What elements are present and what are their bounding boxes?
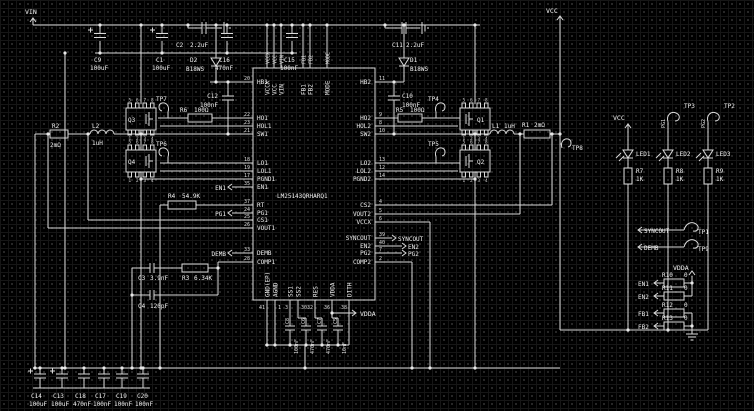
pin-name: RT [257,202,265,209]
ic-top-pins: VCCX VCC VIN FB1 FB2 MODE VCCX VCC VIN F… [265,52,332,95]
res-ref: R11 [662,285,673,292]
vcc-net-label: VCC [613,114,625,122]
res-value: 1K [636,176,644,183]
tp-ref: TP7 [156,96,167,103]
pin-name: FB1 [301,84,308,95]
pad-num: 7 [478,98,481,104]
cap-ref: C19 [116,393,127,400]
pad-num: 1 [129,178,132,184]
pin-name: COMP2 [353,259,371,266]
signal-testpoints[interactable]: TP1 TP9 [684,223,709,253]
pin-num: 2 [379,256,382,262]
pad-num: 2 [136,178,139,184]
fet-ref: Q2 [477,159,485,166]
pin-name: PG2 [360,250,371,257]
cap-value: 100nF [93,401,111,408]
res-ref: R3 [182,275,190,282]
pin-num: 17 [244,173,250,179]
cap-ref: C18 [75,393,86,400]
pg2-net-label: PG2 [701,119,707,128]
pin-num: 35 [244,181,250,187]
pad-num: 6 [136,98,139,104]
res-value: 6.34K [194,275,212,282]
cap-value: 120pF [150,303,168,310]
testpoint-icon [159,148,169,157]
testpoint-icon [684,240,698,248]
cap-value: 470nF [310,339,316,354]
pin-num: 37 [244,199,250,205]
cap-value: 100uF [152,65,170,72]
pin-num: 19 [244,165,250,171]
pin-name: DEMB [257,250,272,257]
vdda-net-label: VDDA [673,264,689,272]
res-value: 1K [716,176,724,183]
resistor-r3 [182,264,208,272]
inductor-l1 [490,130,514,134]
pad-num: 4 [151,178,154,184]
cap-ref: C10 [402,93,413,100]
fet-ref: Q4 [128,159,136,166]
pin-name: VCCX [357,219,372,226]
status-leds[interactable]: LED1 LED2 LED3 R71K R81K R91K TP3 TP2 [616,103,735,184]
pin-num: 11 [379,76,385,82]
pin-name: SS1 [288,286,295,297]
res-value: 2mΩ [50,142,61,149]
tp-ref: TP6 [156,141,167,148]
tp-ref: TP5 [428,141,439,148]
diode-ref: D1 [410,57,418,64]
syncout-net-label: SYNCOUT [644,228,670,235]
cap-ref: C2 [176,42,184,49]
testpoint-icon [561,139,571,148]
ic-lm25143[interactable]: LM25143QRHARQ1 20HB1 22HO1 23HOL1 21SW1 … [244,52,385,311]
ic-name: LM25143QRHARQ1 [277,193,328,200]
pad-num: 8 [485,98,488,104]
cap-ref: C5 [333,318,339,324]
tp-ref: TP8 [572,145,583,152]
res-value: 0 [684,315,688,322]
res-ref: R8 [676,168,684,175]
pin-name: VIN [279,84,286,95]
pin-num: 23 [244,120,250,126]
pad-num: 2 [470,178,473,184]
cap-value: 100uF [90,65,108,72]
pin-name: VOUT1 [257,225,275,232]
cap-ref: C4 [138,303,146,310]
pin-num: 10 [379,128,385,134]
cap-value: 3.9nF [150,275,168,282]
cap-value: 10nF [342,342,348,354]
pin-name: CS1 [257,217,268,224]
cap-value: 100uF [29,401,47,408]
res-value: 2mΩ [534,122,545,129]
pin-name: PGND1 [257,176,275,183]
pad-num: 3 [144,178,147,184]
pin-num: 24 [244,207,250,213]
capacitor-c4 [150,290,154,300]
pad-num: 7 [144,140,147,146]
pin-num: 12 [379,165,385,171]
pin-num: 41 [259,305,265,311]
cap-ref: C9 [94,57,102,64]
pin-name: PGND2 [353,176,371,183]
tp-ref: TP3 [684,103,695,110]
cap-ref: C12 [207,93,218,100]
en2-net-label: EN2 [408,244,419,251]
pin-num: 4 [379,199,382,205]
cap-ref: C11 [392,42,403,49]
pin-name: HO1 [257,115,268,122]
demb-net-label: DEMB [212,251,227,258]
pin-num: 40 [379,240,385,246]
pin-num: 26 [244,222,250,228]
diode-value: B18WS [186,66,204,73]
cap-value: 100nF [280,65,298,72]
demb-net-label: DEMB [644,245,659,252]
pin-name: VDDA [330,282,337,297]
pad-num: 8 [151,98,154,104]
cap-value: 100nF [135,401,153,408]
pin-name: FB2 [308,84,315,95]
res-value: 54.9K [182,193,200,200]
pin-num: 28 [244,256,250,262]
en1-net-label: EN1 [638,281,649,288]
pin-num: 39 [379,232,385,238]
pin-name: RES [313,286,320,297]
inductor-l2 [90,130,114,134]
pad-num: 4 [485,178,488,184]
pad-num: 6 [470,140,473,146]
cap-ref: C15 [284,57,295,64]
cap-value: 100uF [51,401,69,408]
pin-name: EN2 [360,243,371,250]
pin-name: LOL2 [357,168,372,175]
pin-num: 7 [379,247,382,253]
testpoint-icon [159,103,169,112]
pin-num: 38 [341,305,347,311]
cap-value: 2.2uF [406,42,424,49]
cap-ref: C13 [53,393,64,400]
cap-ref: C20 [137,393,148,400]
net-label: VCCX [266,52,272,64]
res-ref: R2 [52,123,60,130]
pin-name: SW1 [257,131,268,138]
pin-num: 6 [379,216,382,222]
testpoint-icon [684,223,698,231]
fb2-net-label: FB2 [638,324,649,331]
pin-num: 13 [379,157,385,163]
syncout-net-label: SYNCOUT [398,236,424,243]
diode-ref: D2 [190,57,198,64]
vdda-net-label: VDDA [360,310,376,318]
pin-name: PG1 [257,210,268,217]
led-ref: LED2 [676,151,691,158]
pin-name: EN1 [257,184,268,191]
net-label: FB1 [302,55,308,64]
pin-name: HOL1 [257,123,272,130]
res-value: 0 [684,302,688,309]
testpoint-icon [668,112,680,122]
tp-ref: TP1 [698,229,709,236]
pin-name: LOL1 [257,168,272,175]
pad-num: 7 [478,140,481,146]
channel1[interactable]: C22.2uF D2B18WS C12100nF R6100Ω TP7 TP6 … [50,22,234,310]
pin-num: 9 [379,112,382,118]
cap-value: 470nF [326,339,332,354]
net-label: MODE [326,52,332,64]
schematic-sheet: LM25143QRHARQ1 20HB1 22HO1 23HOL1 21SW1 … [0,0,754,411]
testpoint-icon [435,103,445,112]
pin-num: 3 [285,305,288,311]
cap-ref: C14 [31,393,42,400]
pin-num: 22 [244,112,250,118]
pad-num: 7 [144,98,147,104]
pin-num: 32 [307,305,313,311]
cap-ref: C6 [301,318,307,324]
res-ref: R6 [180,107,188,114]
res-ref: R10 [662,272,673,279]
net-label: FB2 [309,55,315,64]
pin-name: VOUT2 [353,211,371,218]
diode-value: B18WS [410,66,428,73]
pg1-net-label: PG1 [215,211,226,218]
tp-ref: TP4 [428,96,439,103]
res-ref: R13 [662,315,673,322]
resistor-r4 [168,201,196,209]
res-ref: R9 [716,168,724,175]
testpoint-icon [435,148,445,157]
pin-name: HOL2 [357,123,372,130]
cap-ref: C1 [156,57,164,64]
res-ref: R4 [168,193,176,200]
vcc-net-label: VCC [546,7,558,15]
led-ref: LED1 [636,151,651,158]
gnd-icon [686,334,698,340]
resistor-r1 [524,130,550,138]
schematic-canvas: LM25143QRHARQ1 20HB1 22HO1 23HOL1 21SW1 … [0,0,754,411]
pin-num: 14 [379,173,385,179]
pin-num: 5 [379,208,382,214]
pin-name: LO1 [257,160,268,167]
ind-ref: L2 [92,123,100,130]
cap-ref: C8 [285,318,291,324]
en1-net-label: EN1 [215,185,226,192]
tp-ref: TP2 [724,103,735,110]
pad-num: 5 [463,98,466,104]
channel2[interactable]: C112.2uF D1B18WS C10100nF R5100Ω TP4 TP5… [388,22,583,184]
pad-num: 1 [463,178,466,184]
ic-bottom-pins: GND(EP)41 AGND1 SS13 SS230 RES32 VDDA36 … [259,272,354,311]
pin-name: SW2 [360,131,371,138]
ind-value: 1uH [92,140,103,147]
pad-num: 5 [129,140,132,146]
polarity-plus-icon [88,28,155,33]
pad-num: 5 [129,98,132,104]
res-value: 100Ω [410,107,425,114]
pin-name: COMP1 [257,259,275,266]
cap-value: 470nF [73,401,91,408]
decoupling-capacitors[interactable]: C8 100nF C6 470nF C7 470nF C5 10nF [285,318,348,354]
capacitor-c3 [150,263,154,273]
pin-num: 20 [244,76,250,82]
pin-num: 25 [244,214,250,220]
testpoint-icon [708,112,720,122]
res-ref: R1 [522,122,530,129]
res-value: 0 [684,285,688,292]
pg2-net-label: PG2 [408,251,419,258]
led-ref: LED3 [716,151,731,158]
res-ref: R5 [396,107,404,114]
pin-name: DITH [347,282,354,297]
pin-num: 21 [244,128,250,134]
pin-num: 8 [379,120,382,126]
pin-name: HO2 [360,115,371,122]
res-ref: R12 [662,302,673,309]
pad-num: 8 [485,140,488,146]
pin-name: AGND [273,282,280,297]
pin-name: SS2 [296,286,303,297]
pin-num: 33 [244,247,250,253]
pin-name: VCC [272,84,279,95]
net-label: VCC [273,55,279,64]
cap-ref: C17 [95,393,106,400]
vin-net-label: VIN [25,8,37,16]
ind-ref: L1 [492,123,500,130]
res-value: 100Ω [194,107,209,114]
pad-num: 6 [470,98,473,104]
pin-num: 1 [278,305,281,311]
cap-ref: C3 [138,275,146,282]
res-value: 1K [676,176,684,183]
pad-num: 5 [463,140,466,146]
res-value: 0 [684,272,688,279]
gnd-icon [422,22,428,34]
pin-num: 18 [244,157,250,163]
cap-ref: C7 [317,318,323,324]
polarity-plus-icon [28,369,55,374]
tp-ref: TP9 [698,246,709,253]
pad-num: 8 [151,140,154,146]
res-ref: R7 [636,168,644,175]
cap-value: 100nF [294,339,300,354]
pad-num: 3 [478,178,481,184]
pin-name: GND(EP) [265,272,272,297]
pin-name: VCCX [265,80,272,95]
pg1-net-label: PG1 [661,119,667,128]
cap-value: 2.2uF [190,42,208,49]
pin-name: HB2 [360,79,371,86]
pin-num: 36 [324,305,330,311]
ind-value: 1uH [504,123,515,130]
cap-value: 100nF [114,401,132,408]
pin-name: LO2 [360,160,371,167]
pad-num: 6 [136,140,139,146]
pin-name: CS2 [360,202,371,209]
en2-net-label: EN2 [638,294,649,301]
pin-name: MODE [325,80,332,95]
fb1-net-label: FB1 [638,311,649,318]
fet-ref: Q3 [128,117,136,124]
fet-ref: Q1 [477,117,485,124]
pin-name: SYNCOUT [346,235,372,242]
